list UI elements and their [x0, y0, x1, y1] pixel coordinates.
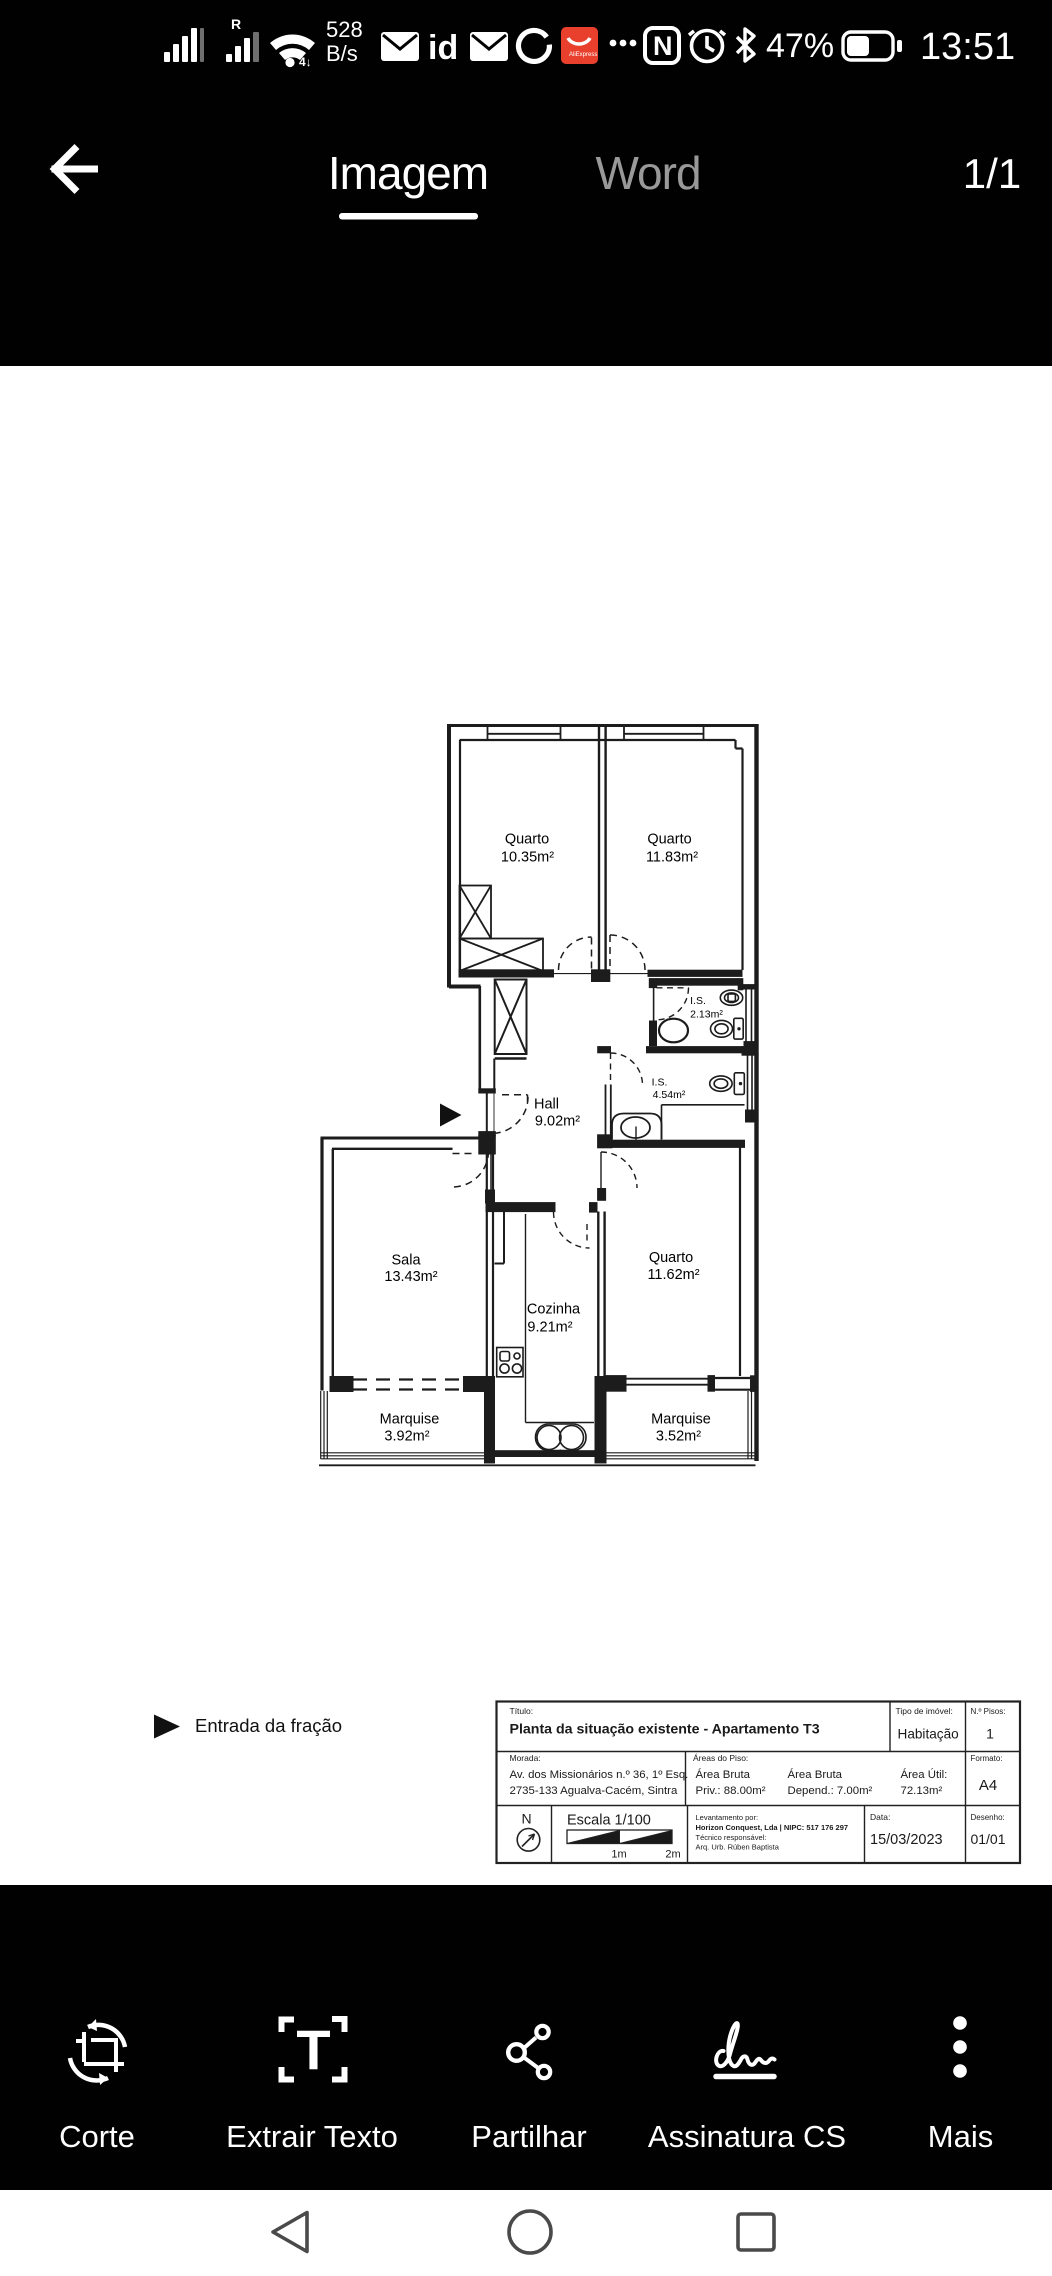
- svg-text:Sala: Sala: [391, 1252, 421, 1268]
- svg-text:N.º Pisos:: N.º Pisos:: [971, 1707, 1006, 1716]
- svg-text:Área Bruta: Área Bruta: [696, 1768, 751, 1781]
- svg-text:Horizon Conquest, Lda | NIPC:: Horizon Conquest, Lda | NIPC: 517 176 29…: [696, 1823, 849, 1832]
- svg-text:01/01: 01/01: [970, 1831, 1005, 1847]
- svg-text:3.52m²: 3.52m²: [656, 1428, 701, 1444]
- svg-text:Quarto: Quarto: [649, 1250, 693, 1266]
- svg-text:Técnico responsável:: Técnico responsável:: [696, 1833, 767, 1842]
- svg-text:Priv.: 88.00m²: Priv.: 88.00m²: [696, 1785, 766, 1797]
- svg-text:Marquise: Marquise: [651, 1411, 711, 1427]
- svg-text:Planta da situação existente -: Planta da situação existente - Apartamen…: [510, 1722, 820, 1738]
- svg-text:Entrada da fração: Entrada da fração: [195, 1715, 342, 1736]
- svg-text:T: T: [296, 2018, 330, 2081]
- svg-text:2.13m²: 2.13m²: [690, 1009, 723, 1021]
- svg-text:Cozinha: Cozinha: [527, 1302, 581, 1318]
- svg-text:id: id: [428, 29, 458, 67]
- svg-text:Mais: Mais: [928, 2119, 993, 2154]
- svg-text:Área Útil:: Área Útil:: [901, 1768, 948, 1781]
- svg-text:Levantamento por:: Levantamento por:: [696, 1813, 759, 1822]
- svg-text:Av. dos Missionários n.º 36, 1: Av. dos Missionários n.º 36, 1º Esq.: [510, 1769, 689, 1781]
- svg-text:4↓: 4↓: [299, 55, 312, 69]
- svg-text:13.43m²: 13.43m²: [384, 1269, 437, 1285]
- svg-text:Arq. Urb. Rúben Baptista: Arq. Urb. Rúben Baptista: [696, 1843, 780, 1852]
- svg-text:15/03/2023: 15/03/2023: [870, 1832, 943, 1848]
- svg-text:Desenho:: Desenho:: [971, 1813, 1005, 1822]
- svg-text:Formato:: Formato:: [971, 1754, 1003, 1763]
- svg-text:10.35m²: 10.35m²: [501, 850, 554, 866]
- svg-text:Tipo de imóvel:: Tipo de imóvel:: [896, 1706, 953, 1716]
- svg-text:Morada:: Morada:: [510, 1753, 541, 1763]
- svg-text:9.02m²: 9.02m²: [535, 1113, 580, 1129]
- svg-text:1/1: 1/1: [963, 150, 1021, 197]
- svg-text:Quarto: Quarto: [647, 832, 691, 848]
- svg-text:Hall: Hall: [534, 1096, 559, 1112]
- svg-text:72.13m²: 72.13m²: [901, 1785, 943, 1797]
- svg-text:Assinatura CS: Assinatura CS: [648, 2119, 846, 2154]
- svg-text:9.21m²: 9.21m²: [527, 1320, 572, 1336]
- svg-text:N: N: [653, 31, 673, 61]
- svg-text:3.92m²: 3.92m²: [384, 1428, 429, 1444]
- svg-text:47%: 47%: [766, 27, 834, 65]
- svg-text:Áreas do Piso:: Áreas do Piso:: [693, 1753, 748, 1763]
- svg-text:I.S.: I.S.: [652, 1076, 668, 1088]
- svg-text:Partilhar: Partilhar: [471, 2119, 586, 2154]
- svg-text:11.83m²: 11.83m²: [646, 850, 698, 866]
- svg-text:Habitação: Habitação: [898, 1727, 959, 1742]
- svg-text:Extrair Texto: Extrair Texto: [226, 2119, 398, 2154]
- svg-text:Marquise: Marquise: [380, 1411, 440, 1427]
- svg-text:Corte: Corte: [59, 2119, 135, 2154]
- svg-text:2m: 2m: [665, 1849, 680, 1861]
- svg-text:Depend.: 7.00m²: Depend.: 7.00m²: [788, 1785, 873, 1797]
- svg-text:2735-133 Agualva-Cacém, Sintra: 2735-133 Agualva-Cacém, Sintra: [510, 1785, 678, 1797]
- svg-text:528: 528: [326, 17, 363, 42]
- svg-text:N: N: [522, 1811, 532, 1827]
- svg-text:I.S.: I.S.: [690, 995, 706, 1007]
- svg-text:Word: Word: [595, 147, 700, 199]
- svg-text:Quarto: Quarto: [505, 832, 549, 848]
- svg-text:A4: A4: [979, 1777, 997, 1794]
- svg-text:Escala 1/100: Escala 1/100: [567, 1813, 651, 1829]
- svg-text:4.54m²: 4.54m²: [653, 1089, 686, 1101]
- svg-text:13:51: 13:51: [920, 26, 1015, 68]
- svg-text:1m: 1m: [611, 1849, 626, 1861]
- svg-text:AliExpress: AliExpress: [569, 52, 597, 58]
- svg-text:Área Bruta: Área Bruta: [788, 1768, 843, 1781]
- svg-text:B/s: B/s: [326, 41, 358, 66]
- svg-text:11.62m²: 11.62m²: [647, 1267, 699, 1283]
- svg-text:Data:: Data:: [870, 1812, 890, 1822]
- svg-text:Título:: Título:: [510, 1706, 534, 1716]
- svg-text:Imagem: Imagem: [328, 147, 488, 199]
- svg-text:R: R: [231, 16, 241, 32]
- svg-text:1: 1: [986, 1726, 994, 1742]
